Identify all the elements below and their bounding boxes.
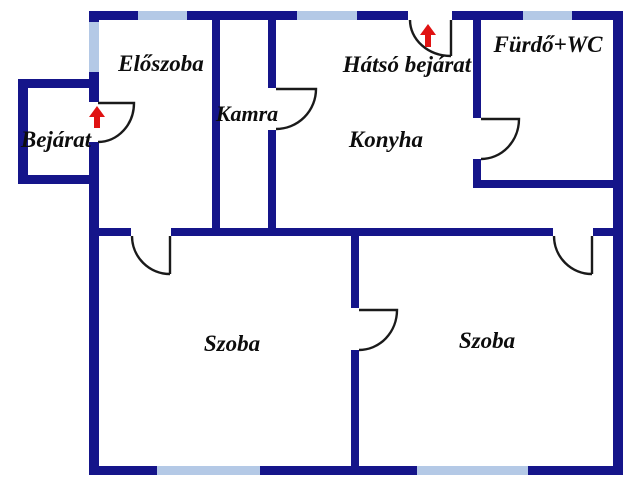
door-swing-konyha-szoba: [554, 236, 592, 274]
room-label-kamra: Kamra: [215, 101, 278, 126]
windows: [89, 11, 572, 475]
wall-szoba-divider: [351, 228, 359, 475]
room-label-szoba-left: Szoba: [204, 331, 260, 356]
room-label-konyha: Konyha: [348, 127, 423, 152]
room-label-hatso-bejarat: Hátsó bejárat: [342, 52, 472, 77]
hatso-bejarat-up-arrow-icon: [420, 24, 436, 47]
window-left-eloszoba: [89, 22, 99, 72]
wall-outer-right: [613, 11, 623, 475]
room-labels: Előszoba Kamra Hátsó bejárat Fürdő+WC Ko…: [20, 32, 603, 356]
wall-porch-top: [18, 79, 98, 88]
door-swing-bejarat: [98, 103, 134, 142]
doorway-eloszoba-szoba: [131, 227, 171, 237]
room-label-furdo-wc: Fürdő+WC: [493, 32, 604, 57]
window-top-konyha: [297, 11, 357, 20]
doorway-furdo: [472, 118, 482, 159]
door-swing-kamra: [276, 89, 316, 129]
wall-porch-bottom: [18, 175, 98, 184]
door-swing-eloszoba-szoba: [132, 236, 170, 274]
room-label-szoba-right: Szoba: [459, 328, 515, 353]
doorway-hatso-bejarat: [408, 10, 452, 21]
doorway-szoba-szoba: [350, 308, 360, 350]
floor-plan: Előszoba Kamra Hátsó bejárat Fürdő+WC Ko…: [0, 0, 640, 480]
window-top-furdo: [523, 11, 572, 20]
door-swing-szoba-szoba: [359, 310, 397, 350]
door-swing-furdo: [481, 119, 519, 159]
room-label-bejarat: Bejárat: [20, 127, 92, 152]
window-bottom-szoba-left: [157, 466, 260, 475]
wall-furdo-left: [473, 11, 481, 188]
window-bottom-szoba-right: [417, 466, 528, 475]
room-label-eloszoba: Előszoba: [117, 51, 204, 76]
wall-furdo-bottom: [473, 180, 623, 188]
doorway-konyha-szoba: [553, 227, 593, 237]
walls: [18, 11, 623, 475]
window-top-eloszoba: [138, 11, 187, 20]
